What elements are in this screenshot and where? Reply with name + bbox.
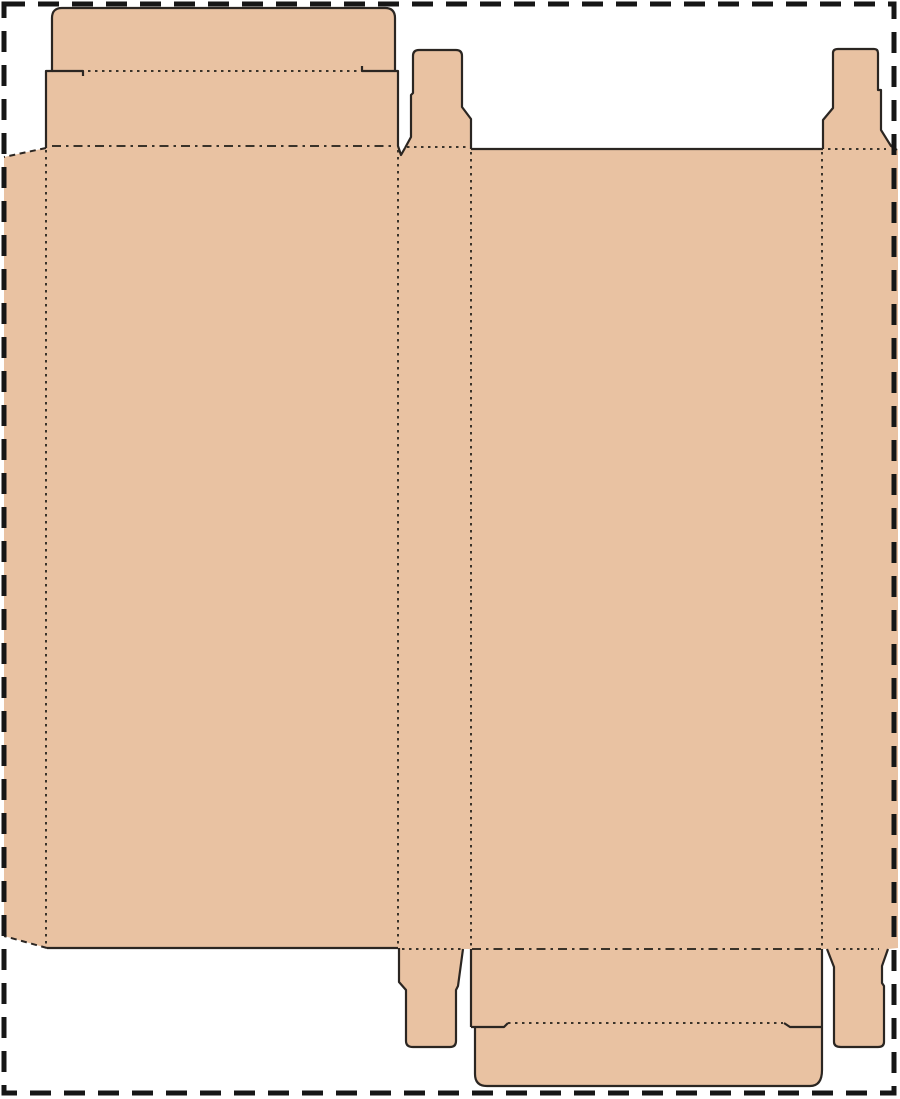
box-dieline-svg	[0, 0, 900, 1099]
carton-board-silhouette	[4, 8, 898, 1086]
die-cut-sheet	[0, 0, 900, 1099]
